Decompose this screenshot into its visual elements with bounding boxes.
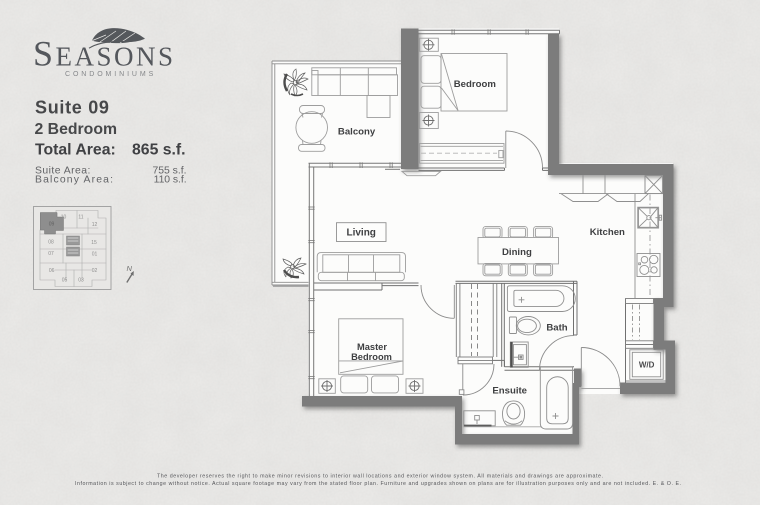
svg-text:10: 10 [61,214,67,220]
svg-text:865 s.f.: 865 s.f. [132,141,186,158]
svg-text:09: 09 [49,222,55,228]
svg-text:Master: Master [357,342,387,352]
svg-text:Ensuite: Ensuite [492,385,527,396]
svg-text:12: 12 [92,222,98,228]
svg-text:Kitchen: Kitchen [590,227,625,238]
svg-text:The developer reserves the rig: The developer reserves the right to make… [157,473,603,479]
svg-text:02: 02 [92,268,98,274]
svg-text:110 s.f.: 110 s.f. [154,175,187,186]
svg-text:Bedroom: Bedroom [351,352,392,362]
svg-text:Suite 09: Suite 09 [35,97,110,117]
svg-text:N: N [127,264,133,273]
svg-text:Living: Living [346,228,375,239]
svg-text:08: 08 [48,240,54,246]
svg-text:Balcony: Balcony [338,127,376,138]
svg-text:2 Bedroom: 2 Bedroom [35,121,118,138]
svg-text:05: 05 [62,278,68,284]
svg-text:Balcony Area:: Balcony Area: [35,175,113,186]
svg-text:11: 11 [78,214,83,220]
svg-text:W/D: W/D [639,360,655,369]
svg-text:06: 06 [49,268,55,274]
svg-text:Total Area:: Total Area: [35,141,116,158]
svg-text:07: 07 [48,251,54,257]
svg-text:CONDOMINIUMS: CONDOMINIUMS [65,71,156,78]
svg-text:Dining: Dining [502,247,532,258]
svg-text:Bath: Bath [546,322,567,333]
svg-text:01: 01 [92,252,98,258]
svg-text:Information is subject to chan: Information is subject to change without… [75,481,681,487]
svg-text:Bedroom: Bedroom [454,79,496,90]
svg-text:03: 03 [78,277,84,283]
svg-text:15: 15 [91,240,97,246]
